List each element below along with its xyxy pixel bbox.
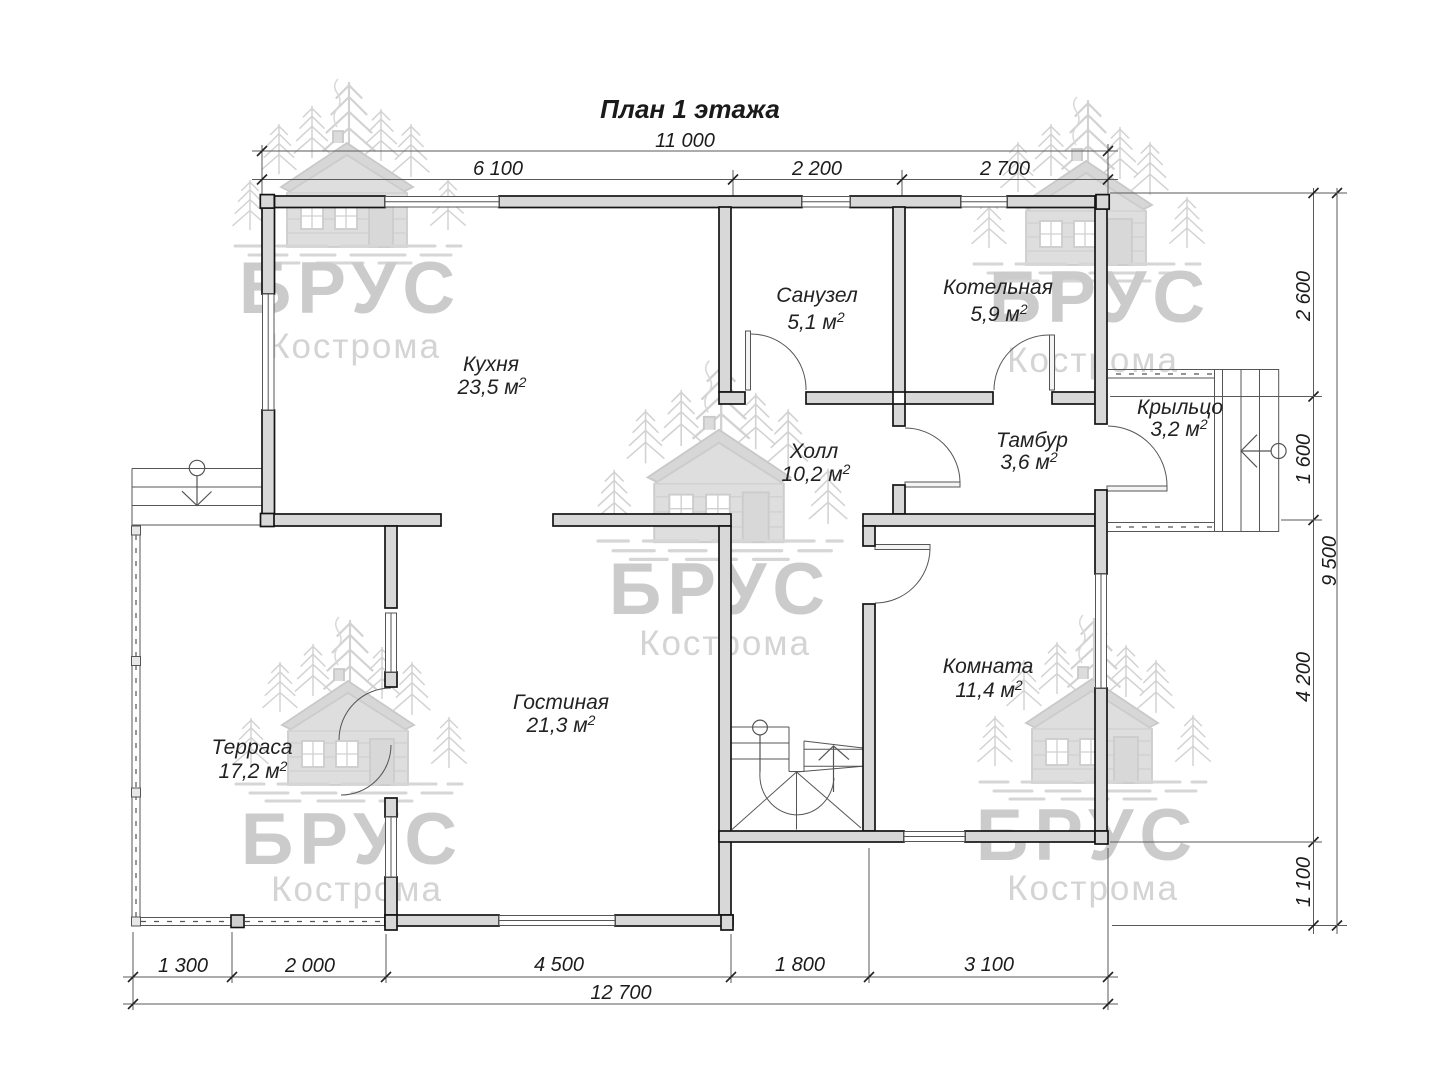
svg-text:Гостиная: Гостиная bbox=[513, 691, 609, 714]
svg-text:2 600: 2 600 bbox=[1293, 271, 1315, 322]
svg-text:Кострома: Кострома bbox=[271, 870, 443, 909]
svg-text:6 100: 6 100 bbox=[473, 158, 523, 180]
svg-text:21,3 м2: 21,3 м2 bbox=[526, 712, 596, 737]
svg-text:9 500: 9 500 bbox=[1319, 536, 1341, 586]
svg-text:Комната: Комната bbox=[943, 655, 1034, 678]
svg-text:1 800: 1 800 bbox=[775, 954, 825, 976]
svg-text:11 000: 11 000 bbox=[655, 130, 715, 152]
svg-text:5,9 м2: 5,9 м2 bbox=[970, 301, 1027, 326]
svg-text:План 1 этажа: План 1 этажа bbox=[600, 94, 780, 124]
svg-text:БРУС: БРУС bbox=[241, 799, 463, 880]
svg-text:Холл: Холл bbox=[789, 440, 839, 463]
svg-text:Кострома: Кострома bbox=[269, 327, 441, 366]
svg-text:10,2 м2: 10,2 м2 bbox=[782, 461, 851, 486]
svg-text:1 100: 1 100 bbox=[1293, 857, 1315, 907]
svg-text:Кострома: Кострома bbox=[1007, 869, 1179, 908]
svg-text:12 700: 12 700 bbox=[590, 982, 651, 1004]
svg-text:2 700: 2 700 bbox=[979, 158, 1030, 180]
svg-text:Крыльцо: Крыльцо bbox=[1137, 396, 1223, 419]
svg-text:4 500: 4 500 bbox=[534, 954, 584, 976]
svg-text:17,2 м2: 17,2 м2 bbox=[219, 758, 288, 783]
svg-text:Кострома: Кострома bbox=[1007, 341, 1179, 380]
svg-text:Котельная: Котельная bbox=[943, 276, 1053, 299]
svg-text:2 000: 2 000 bbox=[284, 955, 335, 977]
svg-text:3 100: 3 100 bbox=[964, 954, 1014, 976]
svg-text:11,4 м2: 11,4 м2 bbox=[955, 677, 1023, 702]
svg-text:3,6 м2: 3,6 м2 bbox=[1000, 449, 1057, 474]
svg-text:23,5 м2: 23,5 м2 bbox=[457, 374, 527, 399]
svg-text:1 300: 1 300 bbox=[158, 955, 208, 977]
svg-text:Санузел: Санузел bbox=[776, 284, 858, 307]
svg-text:1 600: 1 600 bbox=[1293, 434, 1315, 484]
svg-text:2 200: 2 200 bbox=[791, 158, 842, 180]
svg-text:3,2 м2: 3,2 м2 bbox=[1150, 416, 1207, 441]
svg-text:Кухня: Кухня bbox=[463, 353, 519, 376]
svg-text:Терраса: Терраса bbox=[211, 736, 292, 759]
svg-text:4 200: 4 200 bbox=[1293, 652, 1315, 702]
svg-text:5,1 м2: 5,1 м2 bbox=[787, 309, 844, 334]
